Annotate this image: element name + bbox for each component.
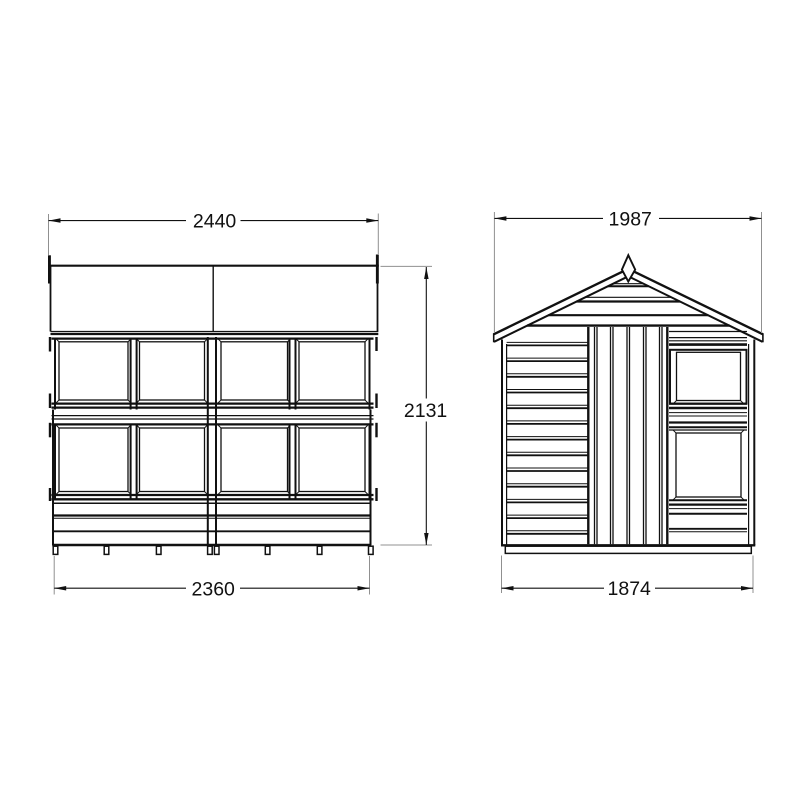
svg-text:1987: 1987 [609,208,652,230]
svg-text:2440: 2440 [193,211,237,233]
svg-text:2360: 2360 [192,578,236,600]
svg-text:1874: 1874 [608,578,652,600]
svg-text:2131: 2131 [404,400,447,422]
